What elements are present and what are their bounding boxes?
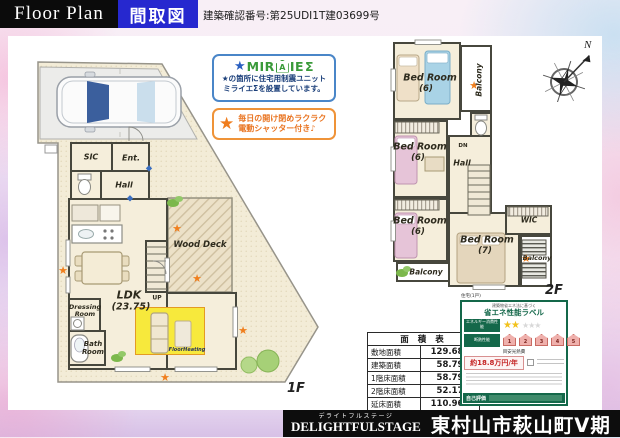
header-floorplan-jp: 間取図 (118, 0, 198, 28)
area-row-label: 延床面積 (368, 398, 421, 411)
energy-performance-label: 建築物省エネ法に基づく 省エネ性能ラベル エネルギー消費性能 ★★ ★★★ 断熱… (460, 300, 568, 406)
confirmation-number: 建築確認番号:第25UDI1T建03699号 (203, 8, 380, 23)
footer-bar: デライトフルステージ DELIGHTFULSTAGE 東村山市萩山町Ⅴ期 (283, 410, 620, 437)
label-dressing-2: Room (75, 310, 95, 318)
fine-print-paragraph (466, 373, 562, 386)
label-hall-1f: Hall (115, 181, 133, 190)
miraie-badge: ★ MIR A IE Σ ★の箇所に住宅用制震ユニット ミライエΣを設置していま… (212, 54, 336, 102)
insulation-grade-3: 3 (535, 334, 548, 346)
label-up: UP (152, 295, 161, 302)
insulation-grade-1: 1 (503, 334, 516, 346)
insulation-label: 断熱性能 (464, 334, 500, 347)
label-1f: 1F (287, 381, 305, 396)
miraie-note-line2: ミライエΣを設置しています。 (218, 84, 330, 94)
miraie-logo: ★ MIR A IE Σ (218, 58, 330, 74)
miraie-house-icon: A (276, 60, 289, 73)
label-bedroom2: Bed Room (393, 142, 447, 153)
self-evaluation-note (489, 395, 562, 401)
insulation-grade-4: 4 (551, 334, 564, 346)
label-dn: DN (458, 143, 467, 149)
flyer-background: { "header": { "floor_plan_en": "Floor Pl… (0, 0, 620, 437)
area-row-label: 建築面積 (368, 359, 421, 372)
label-bedroom4: Bed Room (460, 235, 514, 246)
compass-north-label: N (583, 39, 592, 51)
zeh-checkbox (527, 359, 534, 366)
energy-stars-filled: ★★ (503, 320, 519, 331)
meter-box (45, 145, 57, 153)
utility-cost-box: 約18.8万円/年 (464, 356, 524, 370)
label-balcony-right: Balcony (523, 254, 552, 262)
label-bedroom1: Bed Room (403, 73, 457, 84)
label-hall-2f: Hall (453, 159, 471, 168)
label-floor-heating: FloorHeating (169, 347, 206, 353)
energy-label-title: 省エネ性能ラベル (464, 309, 564, 317)
floorplan-en-text: Floor Plan (14, 3, 104, 25)
label-sic: SIC (84, 153, 99, 162)
label-bath-1: Bath (84, 340, 102, 348)
label-wood-deck: Wood Deck (173, 240, 226, 250)
label-bedroom2-size: (6) (411, 153, 425, 163)
area-row-label: 敷地面積 (368, 346, 421, 359)
self-evaluation-label: 自己評価 (466, 395, 486, 402)
floor-plan-1f: ★ ★ ★ ★ ★ SIC Ent. Hall LDK (23.75) Wood… (25, 55, 320, 400)
miraie-note-line1: ★の箇所に住宅用制震ユニット (218, 74, 330, 84)
room-toilet-1f (70, 170, 102, 200)
shutter-badge: ★ 毎日の開け閉めラクラク 電動シャッター付き♪ (212, 108, 336, 140)
car-icon (57, 72, 181, 132)
label-wic: WIC (521, 216, 538, 225)
brand-name: DELIGHTFULSTAGE (291, 420, 421, 433)
energy-stars-empty: ★★★ (522, 321, 541, 330)
label-ent: Ent. (122, 154, 140, 163)
fine-print-short (537, 359, 564, 367)
floorplan-jp-text: 間取図 (130, 2, 187, 27)
label-bedroom3-size: (6) (411, 227, 425, 237)
label-balcony-top: Balcony (475, 63, 484, 96)
energy-label-type-note: 住宅(1戸) (461, 293, 481, 299)
project-name: 東村山市萩山町Ⅴ期 (431, 409, 611, 438)
area-row-label: 1階床面積 (368, 372, 421, 385)
utility-cost-section-label: 目安光熱費 (464, 349, 564, 355)
utility-cost-value: 約18.8万円/年 (470, 358, 518, 368)
header-floorplan-en: Floor Plan (0, 0, 118, 28)
label-bath-2: Room (82, 348, 104, 356)
compass-rose: N (540, 36, 594, 102)
energy-consumption-label: エネルギー消費性能 (464, 319, 500, 332)
label-bedroom3: Bed Room (393, 216, 447, 227)
area-row-label: 2階床面積 (368, 385, 421, 398)
miraie-star-icon: ★ (234, 60, 246, 73)
label-bedroom4-size: (7) (478, 246, 492, 256)
shutter-note-line2: 電動シャッター付き♪ (238, 124, 326, 134)
insulation-grade-2: 2 (519, 334, 532, 346)
staircase-1f (145, 240, 168, 293)
shutter-star-icon: ★ (219, 114, 234, 134)
label-bedroom1-size: (6) (419, 84, 433, 94)
label-2f: 2F (545, 283, 563, 298)
brand-logo: デライトフルステージ DELIGHTFULSTAGE (291, 414, 421, 433)
label-balcony-left: Balcony (409, 268, 442, 277)
shutter-note-line1: 毎日の開け閉めラクラク (238, 114, 326, 124)
label-ldk-size: (23.75) (112, 302, 151, 313)
label-ldk: LDK (117, 289, 142, 302)
